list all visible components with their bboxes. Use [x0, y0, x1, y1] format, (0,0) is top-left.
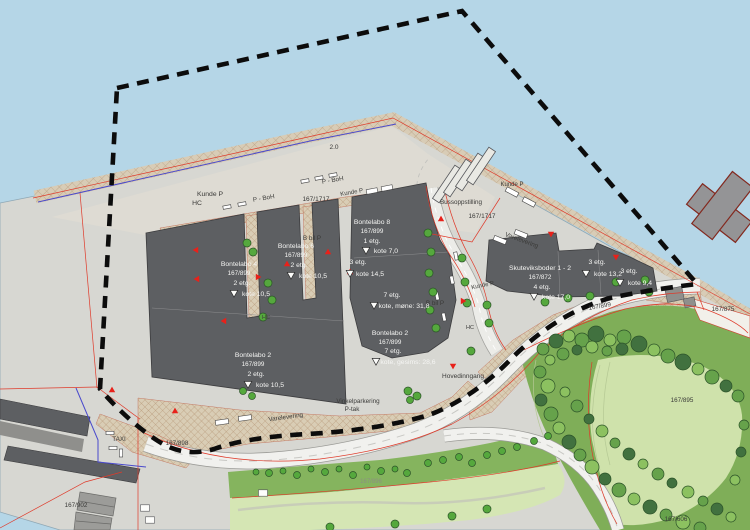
map-label: 2 etg. [233, 280, 250, 287]
tree [711, 503, 723, 515]
tree [736, 447, 746, 457]
vehicle [109, 446, 117, 449]
map-label: HC [466, 325, 474, 331]
map-label: 167/872 [529, 274, 552, 281]
map-label: kote 9,4 [628, 280, 652, 287]
tree [535, 394, 547, 406]
tree [440, 457, 447, 464]
tree [253, 469, 259, 475]
map-label: B bil P [303, 235, 321, 242]
map-label: P-tak [345, 406, 361, 413]
map-label: 167/1717 [468, 213, 495, 220]
tree [730, 475, 740, 485]
shed [141, 505, 150, 511]
tree [425, 269, 433, 277]
tree [425, 460, 432, 467]
map-label: TAXI [112, 436, 126, 443]
tree [424, 229, 432, 237]
map-label: 167/899 [285, 252, 308, 259]
tree [584, 414, 594, 424]
map-label: kote, møne: 31,8 [378, 303, 429, 310]
map-label: 167/606 [665, 516, 688, 523]
tree [610, 438, 620, 448]
tree [553, 422, 565, 434]
tree [599, 473, 611, 485]
tree [648, 344, 660, 356]
tree [560, 387, 570, 397]
tree [563, 330, 575, 342]
tree [544, 407, 558, 421]
tree [545, 355, 555, 365]
tree [413, 392, 421, 400]
map-label: 3 etg. [588, 259, 605, 266]
tree [280, 468, 286, 474]
tree [643, 500, 657, 514]
tree [692, 363, 704, 375]
tree [623, 448, 635, 460]
tree [249, 393, 256, 400]
tree [585, 460, 599, 474]
tree [541, 379, 555, 393]
tree [407, 397, 414, 404]
map-label: 167/895 [671, 397, 694, 404]
site-plan-map: Kunde PHCP - BoHP - BoH167/1717167/1717B… [0, 0, 750, 530]
map-label: 2 etg. [247, 371, 264, 378]
tree [458, 254, 466, 262]
tree [364, 464, 370, 470]
map-label: Skuteviksboder 1 - 2 [509, 265, 571, 272]
tree [350, 472, 357, 479]
tree [661, 349, 675, 363]
map-label: kote 14,5 [356, 271, 384, 278]
tree [537, 343, 549, 355]
map-label: 167/896 [360, 479, 382, 485]
tree [534, 366, 546, 378]
tree [456, 454, 463, 461]
tree [596, 425, 608, 437]
map-label: 3 etg. [349, 259, 366, 266]
tree [448, 512, 456, 520]
map-label: kote 10,5 [256, 382, 284, 389]
map-label: 167/1717 [302, 196, 329, 203]
map-label: 167/899 [379, 339, 402, 346]
tree [427, 248, 435, 256]
map-label: 2 etg. [290, 262, 307, 269]
tree [378, 468, 385, 475]
map-label: 167/899 [242, 361, 265, 368]
shed [146, 517, 155, 523]
tree [586, 341, 598, 353]
tree [726, 512, 736, 522]
map-label: Kunde P [500, 182, 523, 188]
tree [549, 334, 563, 348]
tree [322, 469, 329, 476]
tree [720, 380, 732, 392]
map-label: HC [262, 315, 270, 321]
tree [484, 452, 491, 459]
map-label: Bontelabo 6 [278, 243, 315, 250]
tree [308, 466, 314, 472]
tree [240, 388, 247, 395]
tree [249, 248, 257, 256]
tree [404, 387, 412, 395]
tree [562, 435, 576, 449]
tree [628, 493, 640, 505]
tree [467, 347, 475, 355]
tree [404, 470, 411, 477]
tree [572, 345, 582, 355]
tree [243, 239, 251, 247]
map-label: Bontelabo 2 [372, 330, 409, 337]
tree [483, 301, 491, 309]
tree [652, 468, 664, 480]
tree [531, 438, 538, 445]
map-label: kote 13,2 [594, 271, 622, 278]
tree [631, 336, 647, 352]
tree [638, 459, 648, 469]
tree [545, 433, 552, 440]
map-label: Bontelabo 4 [221, 261, 258, 268]
map-label: 167/902 [65, 502, 88, 509]
map-label: Vinkelparkering [336, 398, 380, 405]
tree [483, 505, 491, 513]
map-label: Hovedinngang [442, 373, 484, 380]
tree [602, 346, 612, 356]
map-label: 3 etg. [620, 268, 637, 275]
map-label: kote 10,5 [299, 273, 327, 280]
vehicle [106, 431, 114, 434]
tree [571, 400, 583, 412]
tree [461, 278, 469, 286]
map-label: kote 17,0 [542, 294, 570, 301]
tree [705, 370, 719, 384]
map-label: 2.0 [329, 144, 338, 151]
map-label: 4 etg. [533, 284, 550, 291]
map-label: 167/898 [166, 440, 189, 447]
map-label: kote, gesims: 28,6 [380, 359, 435, 366]
map-label: Bontelabo 8 [354, 219, 391, 226]
map-label: 167/899 [361, 228, 384, 235]
shed [259, 490, 268, 496]
map-label: Bussoppstilling [440, 199, 483, 206]
map-label: 1 etg. [363, 238, 380, 245]
tree [391, 520, 399, 528]
map-label: kote 7,0 [374, 248, 398, 255]
tree [667, 478, 677, 488]
map-label: 167/899 [228, 270, 251, 277]
tree [617, 330, 631, 344]
tree [499, 448, 506, 455]
tree [739, 420, 749, 430]
map-label: Bontelabo 2 [235, 352, 272, 359]
tree [469, 460, 476, 467]
tree [698, 496, 708, 506]
map-label: 7 etg. [383, 292, 400, 299]
map-label: 167/875 [712, 306, 735, 313]
map-label: Kunde P [197, 191, 224, 198]
tree [514, 444, 521, 451]
tree [574, 449, 586, 461]
tree [326, 523, 334, 530]
tree [682, 486, 694, 498]
tree [294, 472, 301, 479]
tree [586, 292, 594, 300]
tree [392, 466, 398, 472]
site-plan: Kunde PHCP - BoHP - BoH167/1717167/1717B… [0, 0, 750, 530]
tree [266, 470, 273, 477]
tree [432, 324, 440, 332]
tree [675, 354, 691, 370]
tree [429, 288, 437, 296]
tree [264, 279, 272, 287]
tree [616, 343, 628, 355]
vehicle [119, 449, 122, 457]
tree [612, 483, 626, 497]
map-label: HC [192, 200, 202, 207]
tree [485, 319, 493, 327]
tree [588, 326, 604, 342]
map-label: 7 etg. [384, 348, 401, 355]
tree [336, 466, 342, 472]
tree [557, 348, 569, 360]
tree [732, 390, 744, 402]
tree [604, 334, 616, 346]
map-label: kote 10,5 [242, 291, 270, 298]
